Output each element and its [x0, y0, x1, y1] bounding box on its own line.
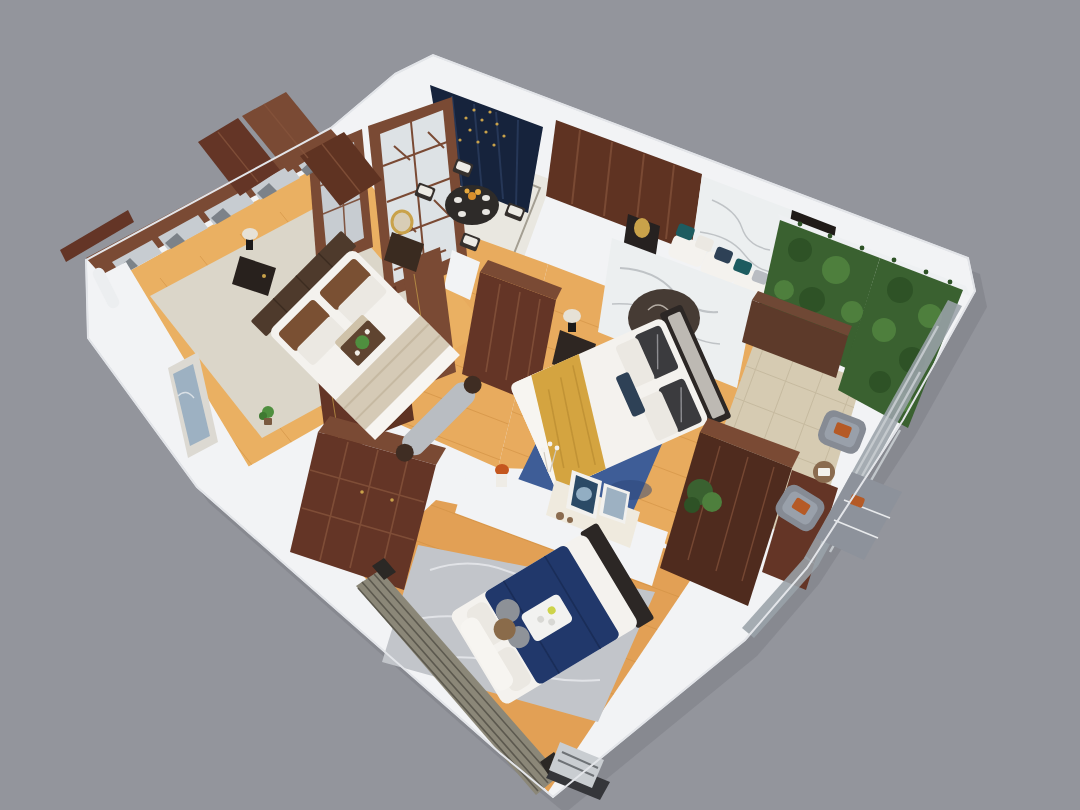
apartment-render-stage: [0, 0, 1080, 810]
round-dining-table: [445, 185, 499, 225]
nightstand-lamp: [563, 309, 581, 323]
apartment-cutaway-svg: [0, 0, 1080, 810]
side-table: [813, 461, 835, 483]
round-gold-mirror: [392, 211, 412, 233]
